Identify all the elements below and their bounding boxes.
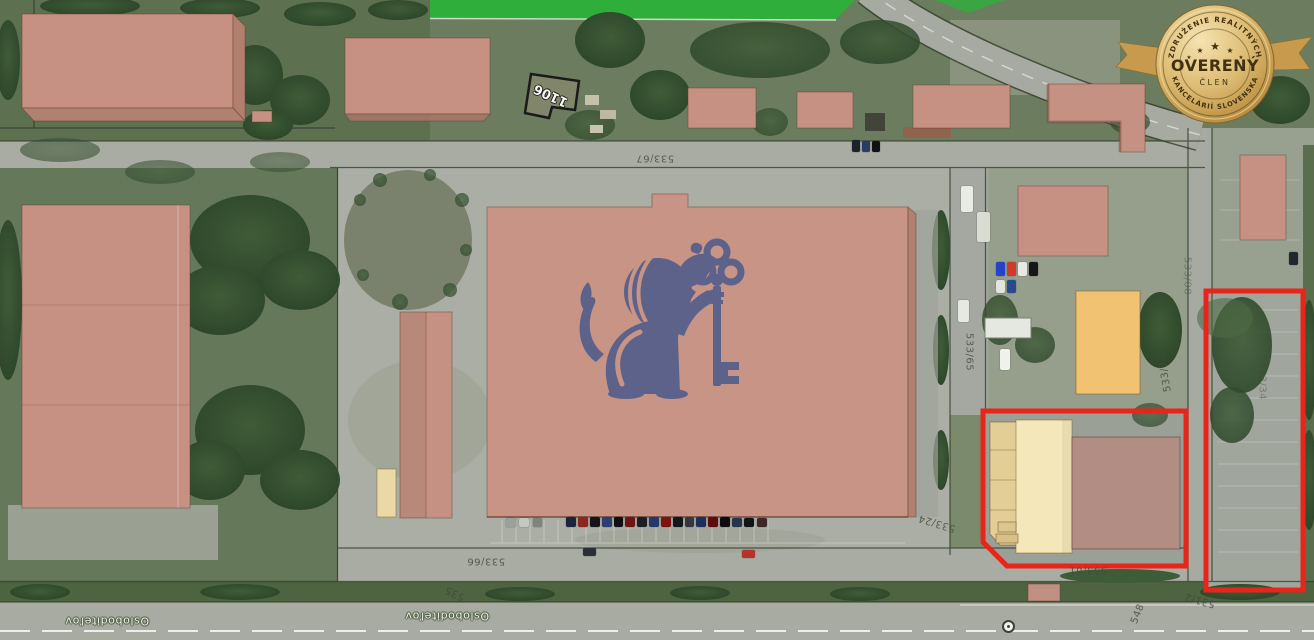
- building-mauve-flat: [1072, 437, 1180, 549]
- badge-star-center: ★: [1210, 40, 1220, 53]
- building-cream-3d: [990, 420, 1072, 553]
- building-small-yellow: [377, 469, 396, 517]
- building-right-mid: [1018, 186, 1108, 256]
- badge-main-text: OVERENÝ: [1171, 56, 1259, 75]
- building-top-5: [913, 85, 1010, 128]
- aerial-property-map: ZDRUŽENIE REALITNÝCH KANCELÁRIÍ SLOVENSK…: [0, 0, 1314, 640]
- building-mid-narrow: [400, 312, 452, 518]
- building-top-4: [797, 92, 853, 128]
- building-orange: [1076, 291, 1140, 394]
- building-right-upper: [1240, 155, 1286, 240]
- building-top-2: [345, 38, 490, 121]
- building-top-3: [688, 88, 756, 128]
- badge-star-left: ★: [1197, 46, 1204, 55]
- map-graphics: ZDRUŽENIE REALITNÝCH KANCELÁRIÍ SLOVENSK…: [0, 0, 1314, 640]
- badge-star-right: ★: [1227, 46, 1234, 55]
- road-sign-icon: [1002, 620, 1015, 633]
- building-left-large: [22, 205, 190, 508]
- building-small-annex: [252, 111, 272, 122]
- badge-sub-text: ČLEN: [1199, 76, 1230, 87]
- building-bottom-small: [1028, 584, 1060, 601]
- building-main-hall: [487, 194, 916, 517]
- building-top-left: [22, 14, 245, 121]
